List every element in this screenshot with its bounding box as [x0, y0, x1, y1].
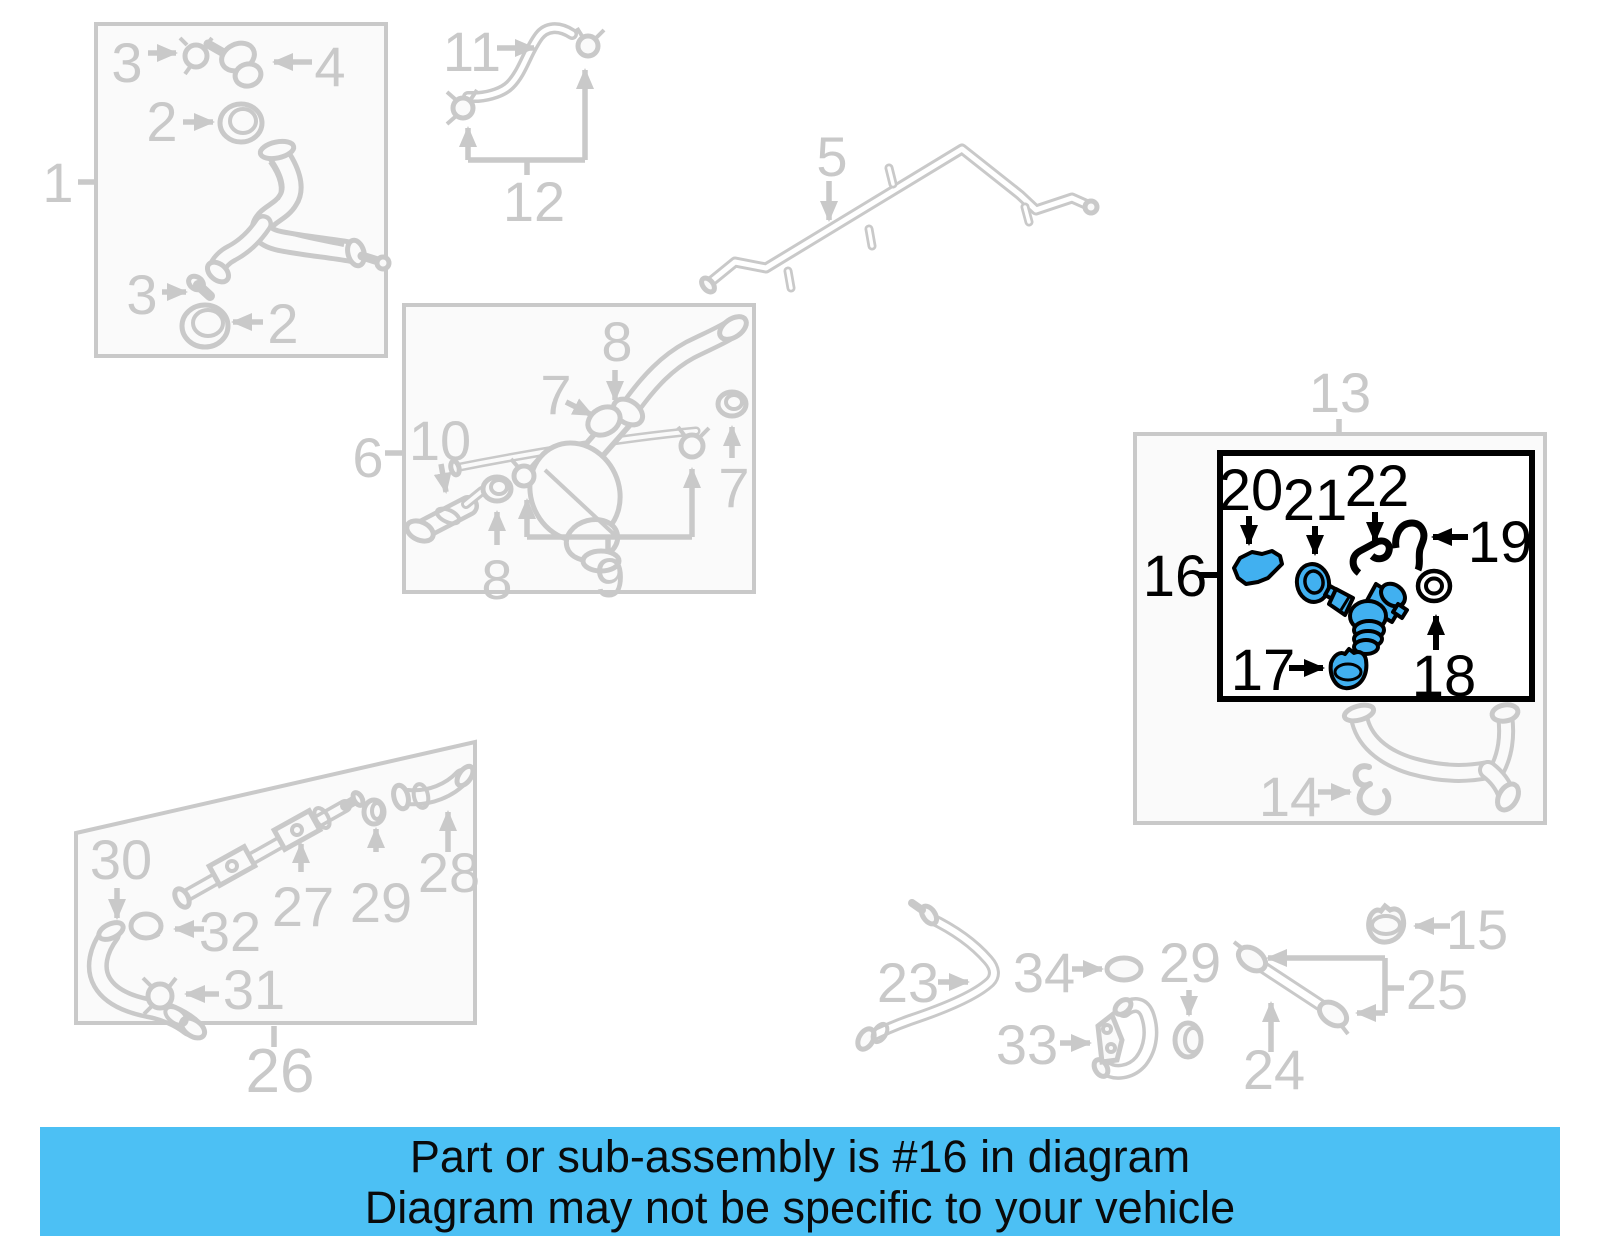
callout-3-top: 3: [111, 31, 142, 94]
callout-24: 24: [1243, 1038, 1305, 1101]
bracket-25: [1385, 958, 1404, 1013]
cap-32: [131, 914, 161, 938]
callout-8-bottom: 8: [481, 548, 512, 611]
callout-7-left: 7: [540, 363, 571, 426]
group-pipe5: 5: [699, 125, 1097, 294]
callout-10: 10: [409, 409, 471, 472]
callout-22: 22: [1345, 454, 1410, 519]
seal-ring-2-bottom: [182, 305, 228, 347]
callout-21: 21: [1283, 468, 1348, 533]
banner-line2: Diagram may not be specific to your vehi…: [365, 1182, 1235, 1233]
callout-31: 31: [223, 958, 285, 1021]
parts-diagram: 1 3 4 2: [0, 0, 1600, 1249]
callout-33: 33: [996, 1013, 1058, 1076]
callout-12: 12: [503, 170, 565, 233]
callout-29-box26: 29: [350, 871, 412, 934]
callout-2-bottom: 2: [267, 292, 298, 355]
callout-20: 20: [1219, 458, 1284, 523]
cap-17: [1331, 649, 1367, 688]
callout-29-right: 29: [1159, 931, 1221, 994]
clamp-12-left: [447, 90, 477, 124]
clamp-12-right: [577, 28, 604, 56]
callout-18: 18: [1412, 644, 1477, 709]
callout-2-top: 2: [146, 90, 177, 153]
callout-15: 15: [1446, 898, 1508, 961]
group-box1-hose-assembly: 1 3 4 2: [42, 24, 389, 356]
callout-4: 4: [314, 35, 345, 98]
callout-1: 1: [42, 151, 73, 214]
callout-25: 25: [1406, 958, 1468, 1021]
parts-diagram-page: 1 3 4 2: [0, 0, 1600, 1249]
seal-ring-2-top: [220, 104, 262, 142]
callout-3-bottom: 3: [126, 263, 157, 326]
callout-32: 32: [199, 900, 261, 963]
oring-18: [1418, 571, 1450, 601]
bracket-33: [1091, 997, 1150, 1079]
group-box26: 26 27 29 28: [76, 742, 480, 1106]
info-banner: Part or sub-assembly is #16 in diagram D…: [40, 1127, 1560, 1236]
callout-30: 30: [90, 828, 152, 891]
callout-8-top: 8: [601, 310, 632, 373]
banner-line1: Part or sub-assembly is #16 in diagram: [410, 1131, 1190, 1182]
group-hose11-clamps12: 11 12: [443, 20, 604, 233]
group-box13: 13 14 20 21 22: [1135, 361, 1545, 828]
group-box6-water-outlet: 6 10: [352, 305, 754, 611]
callout-11: 11: [443, 20, 501, 83]
callout-16: 16: [1143, 544, 1208, 609]
cap-15: [1369, 906, 1404, 942]
callout-27: 27: [272, 875, 334, 938]
callout-26: 26: [246, 1037, 315, 1106]
group-pipe23: 23 34 33: [854, 903, 1150, 1079]
callout-7-right: 7: [718, 456, 749, 519]
oring-29-right: [1175, 1023, 1201, 1057]
callout-6: 6: [352, 426, 383, 489]
seal-8-bottom: [483, 477, 511, 501]
callout-9: 9: [594, 546, 625, 609]
callout-5: 5: [816, 125, 847, 188]
callout-14: 14: [1259, 765, 1321, 828]
callout-19: 19: [1468, 510, 1533, 575]
oring-29-box26: [364, 800, 384, 824]
callout-13: 13: [1309, 361, 1371, 424]
oring-34: [1107, 958, 1141, 980]
seal-7-right: [718, 392, 746, 416]
group-lower-right: 15 29 24 25: [1159, 898, 1508, 1101]
callout-23: 23: [877, 951, 939, 1014]
callout-17: 17: [1231, 638, 1296, 703]
callout-34: 34: [1013, 941, 1075, 1004]
